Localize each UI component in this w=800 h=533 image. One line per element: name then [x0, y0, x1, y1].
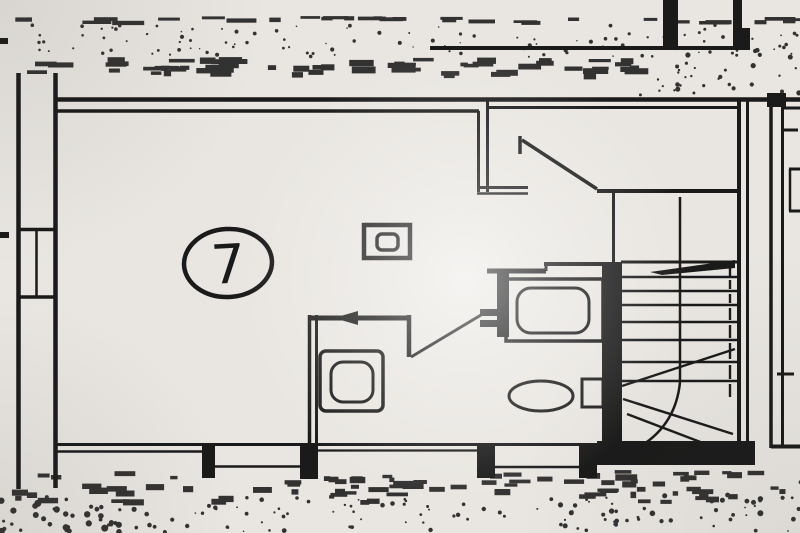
room-label: 7: [182, 227, 273, 300]
staircase: [621, 197, 737, 446]
direction-arrow: [334, 311, 358, 325]
bathtub-basin: [517, 288, 589, 333]
stair-bottom-wall: [597, 441, 755, 465]
toilet-bowl: [331, 362, 373, 402]
winder-tread: [627, 414, 703, 443]
right-structure-fragments: [767, 93, 800, 448]
bottom-wall: [56, 441, 755, 479]
room-number: 7: [209, 232, 247, 297]
floor-plan-drawing: 7: [0, 0, 800, 533]
wc-room: [308, 311, 486, 446]
entrance-hall: [477, 99, 740, 263]
wall-pier: [300, 444, 318, 479]
outer-walls: [19, 73, 800, 489]
floor-plan-scan: 7: [0, 0, 800, 533]
wall-pier: [477, 444, 495, 478]
top-structure-fragments: [0, 0, 750, 238]
bathroom-stair-wall: [602, 262, 622, 444]
washbasin: [509, 381, 573, 411]
wall-pier: [579, 444, 597, 478]
left-window: [18, 230, 56, 298]
door-jamb: [480, 320, 498, 327]
entrance-door-leaf: [522, 140, 597, 189]
wall-pier: [202, 444, 215, 478]
wc-door-leaf: [411, 312, 486, 357]
cistern: [582, 379, 603, 407]
winder-tread: [623, 399, 733, 434]
flue-shaft-symbol: [364, 225, 410, 258]
bathroom: [480, 262, 622, 444]
